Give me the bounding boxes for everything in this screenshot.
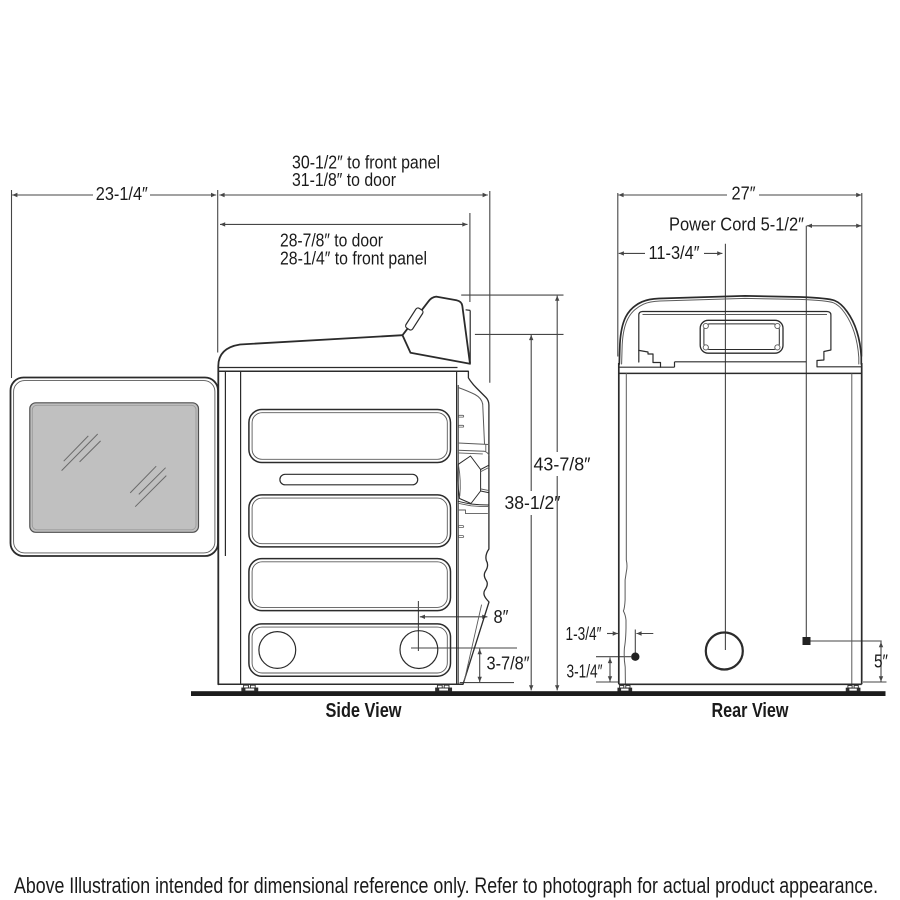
svg-text:8″: 8″ (494, 607, 510, 627)
svg-text:3-1/4″: 3-1/4″ (567, 662, 603, 682)
svg-text:1-3/4″: 1-3/4″ (566, 624, 602, 644)
svg-text:Power Cord 5-1/2″: Power Cord 5-1/2″ (669, 215, 805, 235)
svg-text:23-1/4″: 23-1/4″ (96, 184, 149, 204)
svg-text:Rear View: Rear View (712, 700, 789, 722)
svg-text:Side View: Side View (326, 700, 402, 722)
svg-text:Above Illustration intended fo: Above Illustration intended for dimensio… (14, 873, 878, 898)
svg-text:11-3/4″: 11-3/4″ (649, 243, 701, 263)
svg-text:38-1/2″: 38-1/2″ (505, 493, 562, 513)
svg-text:5″: 5″ (874, 652, 889, 672)
svg-text:28-7/8″ to door: 28-7/8″ to door (280, 231, 383, 251)
svg-text:31-1/8″ to door: 31-1/8″ to door (292, 170, 396, 190)
svg-text:28-1/4″ to front panel: 28-1/4″ to front panel (280, 249, 427, 269)
svg-text:43-7/8″: 43-7/8″ (534, 455, 592, 475)
svg-text:3-7/8″: 3-7/8″ (487, 654, 531, 674)
svg-text:27″: 27″ (732, 184, 757, 204)
